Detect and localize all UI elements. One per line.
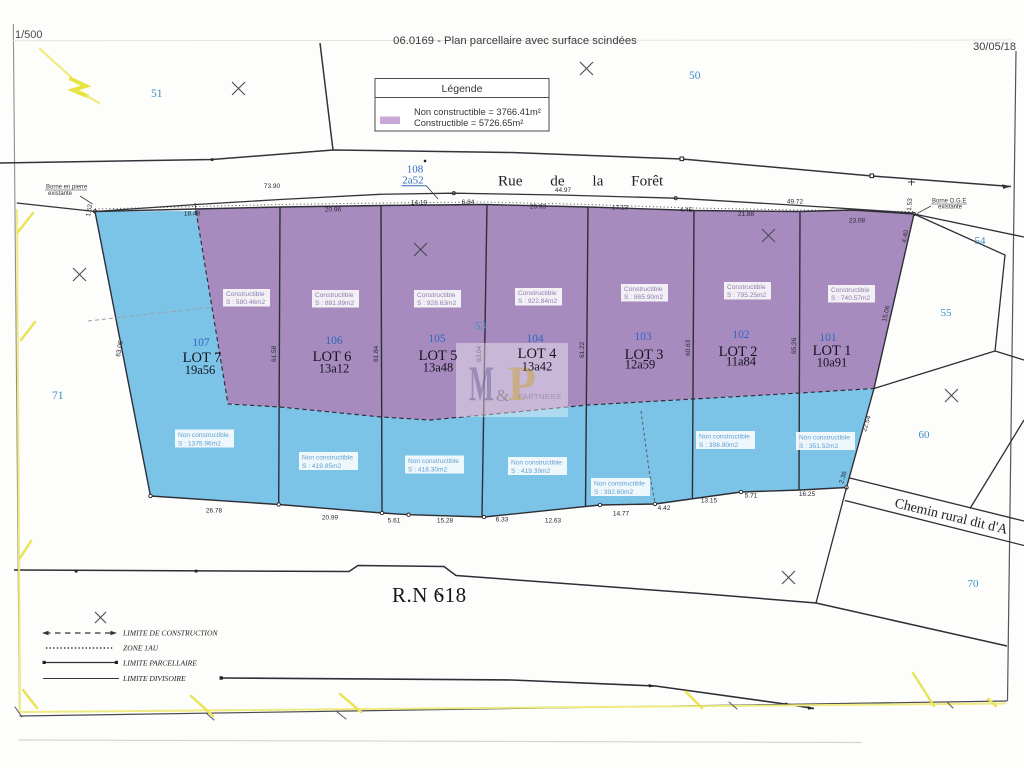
svg-text:Borne en pierre: Borne en pierre	[46, 185, 88, 191]
svg-text:06.0169 - Plan parcellaire ave: 06.0169 - Plan parcellaire avec surface …	[393, 35, 637, 47]
svg-text:Constructible = 5726.65m²: Constructible = 5726.65m²	[414, 118, 523, 128]
svg-text:S : 418.30m2: S : 418.30m2	[408, 467, 448, 474]
svg-text:LIMITE DIVISOIRE: LIMITE DIVISOIRE	[122, 674, 186, 683]
svg-text:15.28: 15.28	[437, 518, 454, 525]
svg-text:Constructible: Constructible	[624, 286, 663, 293]
svg-text:53: 53	[475, 320, 487, 332]
svg-text:6.84: 6.84	[462, 199, 475, 206]
svg-text:Constructible: Constructible	[315, 292, 354, 299]
svg-text:S : 398.80m2: S : 398.80m2	[699, 442, 739, 449]
svg-text:Constructible: Constructible	[831, 287, 870, 294]
svg-text:5.61: 5.61	[388, 518, 401, 525]
svg-text:106: 106	[325, 335, 343, 347]
svg-text:2a52: 2a52	[402, 175, 423, 187]
svg-text:11a84: 11a84	[726, 355, 757, 369]
svg-text:Non constructible: Non constructible	[799, 435, 850, 442]
svg-text:13a42: 13a42	[522, 360, 553, 374]
svg-text:existante: existante	[48, 191, 73, 197]
svg-text:51: 51	[151, 88, 163, 100]
svg-text:13.15: 13.15	[701, 498, 718, 505]
svg-text:1.53: 1.53	[906, 198, 914, 212]
svg-text:ZONE 1AU: ZONE 1AU	[123, 644, 159, 653]
svg-text:61.58: 61.58	[271, 345, 278, 362]
svg-text:Non constructible = 3766.41m²: Non constructible = 3766.41m²	[414, 107, 541, 117]
svg-text:20.99: 20.99	[322, 515, 339, 522]
svg-text:44.97: 44.97	[555, 187, 572, 194]
svg-text:21.88: 21.88	[738, 211, 755, 218]
svg-text:S : 795.25m2: S : 795.25m2	[727, 292, 767, 299]
svg-text:104: 104	[526, 333, 544, 345]
svg-text:30/05/18: 30/05/18	[973, 41, 1016, 53]
svg-text:26.78: 26.78	[206, 508, 223, 515]
svg-text:49.72: 49.72	[787, 199, 804, 206]
svg-text:S : 392.60m2: S : 392.60m2	[594, 489, 634, 496]
svg-text:107: 107	[192, 337, 210, 349]
svg-text:61.22: 61.22	[579, 341, 586, 358]
svg-text:S : 928.63m2: S : 928.63m2	[417, 300, 457, 307]
svg-text:S : 1375.96m2: S : 1375.96m2	[178, 441, 221, 448]
svg-text:19a56: 19a56	[185, 363, 216, 377]
svg-text:S : 865.90m2: S : 865.90m2	[624, 294, 664, 301]
svg-text:Non constructible: Non constructible	[302, 455, 353, 462]
svg-text:S : 740.57m2: S : 740.57m2	[831, 295, 871, 302]
svg-text:60: 60	[919, 429, 931, 441]
svg-text:Non constructible: Non constructible	[408, 458, 459, 465]
svg-text:20.93: 20.93	[530, 204, 547, 211]
svg-text:103: 103	[634, 331, 652, 343]
svg-text:13a12: 13a12	[319, 362, 350, 376]
svg-text:Constructible: Constructible	[727, 284, 766, 291]
svg-text:13a48: 13a48	[423, 361, 454, 375]
svg-text:55: 55	[941, 307, 953, 319]
svg-text:Légende: Légende	[442, 83, 483, 95]
svg-text:LIMITE DE CONSTRUCTION: LIMITE DE CONSTRUCTION	[122, 629, 218, 638]
svg-text:S : 419.39m2: S : 419.39m2	[511, 468, 551, 475]
svg-text:14.19: 14.19	[411, 200, 428, 207]
svg-text:Constructible: Constructible	[417, 292, 456, 299]
svg-text:50: 50	[689, 70, 701, 82]
svg-text:102: 102	[732, 329, 750, 341]
svg-text:Constructible: Constructible	[518, 290, 557, 297]
svg-text:18.48: 18.48	[184, 211, 201, 218]
svg-text:73.90: 73.90	[264, 183, 281, 190]
svg-text:12a59: 12a59	[625, 358, 656, 372]
svg-text:61.84: 61.84	[373, 345, 380, 362]
svg-text:S : 922.84m2: S : 922.84m2	[518, 298, 558, 305]
svg-text:Non constructible: Non constructible	[511, 460, 562, 467]
svg-text:4.45: 4.45	[680, 207, 693, 214]
svg-text:M: M	[469, 355, 494, 411]
svg-text:S : 881.99m2: S : 881.99m2	[315, 300, 355, 307]
svg-text:LIMITE PARCELLAIRE: LIMITE PARCELLAIRE	[122, 659, 197, 668]
svg-text:71: 71	[52, 390, 64, 402]
svg-text:16.25: 16.25	[799, 491, 816, 498]
svg-text:S : 351.52m2: S : 351.52m2	[799, 443, 839, 450]
svg-text:existante: existante	[938, 205, 963, 211]
svg-text:23.08: 23.08	[849, 218, 866, 225]
svg-text:Constructible: Constructible	[226, 291, 265, 298]
svg-text:70: 70	[968, 578, 980, 590]
svg-text:6.33: 6.33	[496, 517, 509, 524]
svg-text:20.96: 20.96	[325, 207, 342, 214]
svg-text:65.26: 65.26	[791, 337, 798, 354]
svg-text:14.77: 14.77	[613, 511, 630, 518]
svg-text:17.13: 17.13	[612, 205, 629, 212]
svg-text:S : 419.85m2: S : 419.85m2	[302, 463, 342, 470]
svg-text:4.42: 4.42	[658, 505, 671, 512]
svg-text:R.N 618: R.N 618	[392, 583, 467, 607]
svg-text:12.63: 12.63	[545, 518, 562, 525]
svg-text:10a91: 10a91	[817, 356, 848, 370]
svg-text:Non constructible: Non constructible	[699, 434, 750, 441]
svg-text:54: 54	[975, 235, 987, 247]
svg-text:60.63: 60.63	[685, 339, 692, 356]
svg-text:S : 580.46m2: S : 580.46m2	[226, 299, 266, 306]
svg-text:Non constructible: Non constructible	[594, 481, 645, 488]
svg-text:Non constructible: Non constructible	[178, 432, 229, 439]
svg-text:1/500: 1/500	[15, 29, 43, 41]
svg-text:5.71: 5.71	[745, 493, 758, 500]
svg-text:Rue de la Forêt: Rue de la Forêt	[498, 173, 664, 190]
svg-text:PARTNERS: PARTNERS	[518, 392, 561, 401]
svg-text:105: 105	[428, 333, 446, 345]
